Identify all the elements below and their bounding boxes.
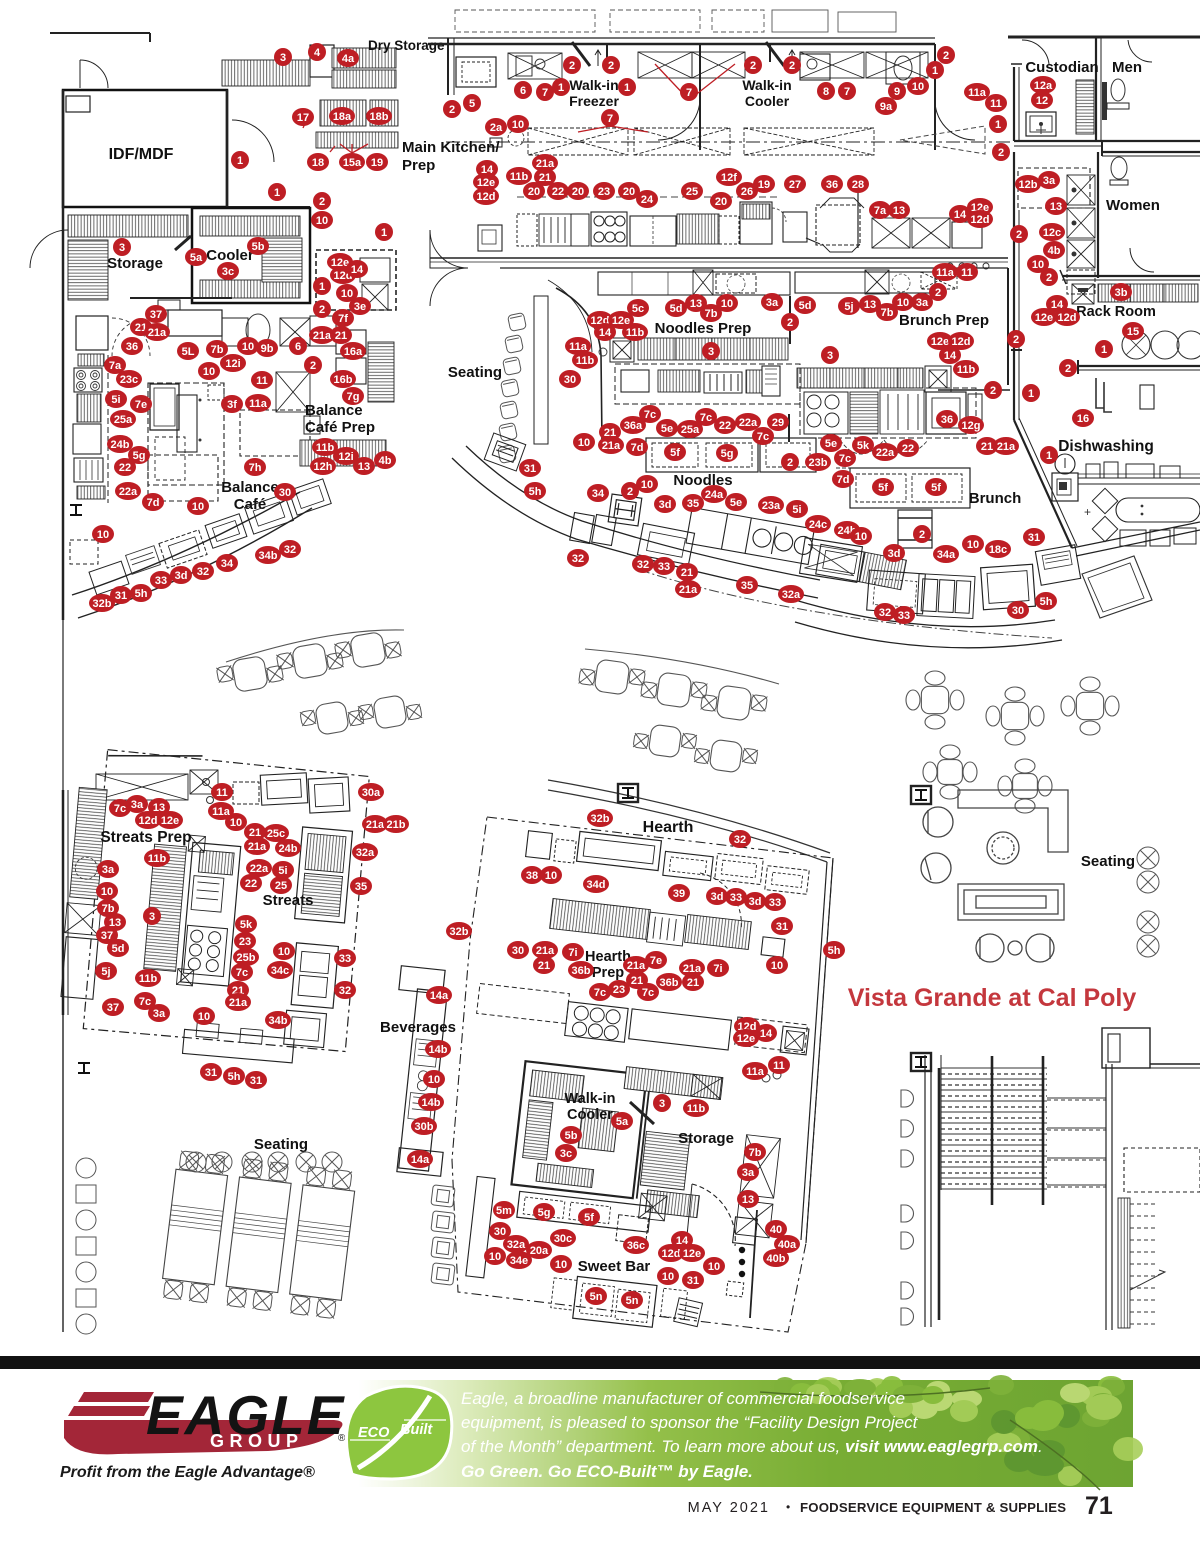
svg-text:FOODSERVICE EQUIPMENT & SUPPLI: FOODSERVICE EQUIPMENT & SUPPLIES <box>800 1500 1066 1515</box>
svg-text:1: 1 <box>624 82 630 94</box>
svg-text:5f: 5f <box>584 1212 594 1224</box>
svg-text:2: 2 <box>319 196 325 208</box>
svg-text:7a: 7a <box>109 360 122 372</box>
svg-text:37: 37 <box>107 1002 119 1014</box>
svg-text:5d: 5d <box>670 303 683 315</box>
svg-text:39: 39 <box>673 888 685 900</box>
svg-text:22a: 22a <box>250 863 269 875</box>
svg-text:2: 2 <box>608 60 614 72</box>
svg-text:12: 12 <box>1036 95 1048 107</box>
svg-text:3c: 3c <box>222 266 234 278</box>
svg-text:40a: 40a <box>778 1239 797 1251</box>
svg-text:3: 3 <box>827 350 833 362</box>
svg-text:18a: 18a <box>333 111 352 123</box>
svg-text:10: 10 <box>428 1074 440 1086</box>
svg-text:12h: 12h <box>314 461 333 473</box>
svg-text:3a: 3a <box>766 297 779 309</box>
svg-text:2: 2 <box>1016 229 1022 241</box>
svg-text:11a: 11a <box>746 1066 765 1078</box>
svg-text:22: 22 <box>902 443 914 455</box>
svg-text:5d: 5d <box>799 300 812 312</box>
svg-text:13: 13 <box>358 461 370 473</box>
svg-text:5f: 5f <box>878 482 888 494</box>
svg-text:21: 21 <box>981 441 993 453</box>
svg-text:4a: 4a <box>342 53 355 65</box>
svg-text:MAY 2021: MAY 2021 <box>688 1500 770 1516</box>
svg-text:4b: 4b <box>379 455 392 467</box>
svg-text:1: 1 <box>381 227 387 239</box>
svg-text:18c: 18c <box>989 544 1007 556</box>
svg-text:11: 11 <box>773 1060 785 1072</box>
svg-text:33: 33 <box>898 610 910 622</box>
svg-text:11b: 11b <box>576 355 595 367</box>
svg-text:12e: 12e <box>161 815 179 827</box>
svg-text:34: 34 <box>221 558 234 570</box>
svg-text:10: 10 <box>912 81 924 93</box>
svg-text:36: 36 <box>941 414 953 426</box>
svg-text:3a: 3a <box>1043 175 1056 187</box>
svg-text:7e: 7e <box>650 955 662 967</box>
svg-text:Walk-in: Walk-in <box>569 77 618 93</box>
svg-text:23b: 23b <box>809 457 828 469</box>
svg-text:3d: 3d <box>711 891 724 903</box>
svg-text:Storage: Storage <box>678 1130 734 1147</box>
svg-text:24: 24 <box>641 194 654 206</box>
svg-text:32: 32 <box>339 985 351 997</box>
svg-text:21a: 21a <box>602 440 621 452</box>
svg-text:11: 11 <box>216 787 228 799</box>
svg-text:12e: 12e <box>931 336 949 348</box>
svg-text:16b: 16b <box>334 374 353 386</box>
svg-text:14b: 14b <box>429 1044 448 1056</box>
svg-text:5a: 5a <box>616 1116 629 1128</box>
svg-text:5f: 5f <box>931 482 941 494</box>
svg-text:Walk-in: Walk-in <box>742 77 791 93</box>
svg-text:5h: 5h <box>828 945 841 957</box>
svg-text:32a: 32a <box>507 1239 526 1251</box>
svg-text:4: 4 <box>314 47 321 59</box>
svg-text:17: 17 <box>297 112 309 124</box>
svg-text:30: 30 <box>279 487 291 499</box>
svg-text:6: 6 <box>520 85 526 97</box>
svg-text:14a: 14a <box>430 990 449 1002</box>
svg-text:Go Green. Go ECO-Built™ by Eag: Go Green. Go ECO-Built™ by Eagle. <box>461 1462 753 1481</box>
svg-text:Men: Men <box>1112 59 1142 76</box>
svg-text:3d: 3d <box>749 896 762 908</box>
svg-text:23: 23 <box>613 984 625 996</box>
svg-text:1: 1 <box>995 119 1001 131</box>
svg-text:18: 18 <box>312 157 324 169</box>
svg-text:Hearth: Hearth <box>643 819 694 836</box>
svg-text:11b: 11b <box>626 327 645 339</box>
svg-text:36b: 36b <box>660 977 679 989</box>
svg-text:33: 33 <box>339 953 351 965</box>
svg-text:32b: 32b <box>450 926 469 938</box>
svg-text:22a: 22a <box>876 447 895 459</box>
svg-text:10: 10 <box>578 437 590 449</box>
svg-text:25c: 25c <box>267 828 285 840</box>
svg-text:30: 30 <box>564 374 576 386</box>
svg-text:10: 10 <box>512 119 524 131</box>
svg-text:7d: 7d <box>147 497 160 509</box>
svg-text:Rack Room: Rack Room <box>1076 304 1156 320</box>
svg-text:40b: 40b <box>767 1253 786 1265</box>
svg-text:7d: 7d <box>631 442 644 454</box>
svg-text:2: 2 <box>1065 363 1071 375</box>
svg-text:1: 1 <box>1028 388 1034 400</box>
svg-text:11: 11 <box>990 98 1002 110</box>
svg-text:21: 21 <box>681 567 693 579</box>
svg-text:7c: 7c <box>236 967 248 979</box>
svg-text:13: 13 <box>893 205 905 217</box>
svg-text:5b: 5b <box>565 1130 578 1142</box>
svg-text:7i: 7i <box>568 947 577 959</box>
svg-text:26: 26 <box>741 186 753 198</box>
svg-text:32: 32 <box>637 559 649 571</box>
svg-text:31: 31 <box>250 1075 262 1087</box>
svg-text:30: 30 <box>494 1226 506 1238</box>
svg-text:22: 22 <box>245 878 257 890</box>
svg-text:10: 10 <box>203 366 215 378</box>
svg-text:32a: 32a <box>782 589 801 601</box>
svg-text:21a: 21a <box>536 158 555 170</box>
svg-text:14: 14 <box>351 264 364 276</box>
svg-text:5e: 5e <box>825 438 837 450</box>
svg-text:1: 1 <box>558 82 564 94</box>
svg-text:21: 21 <box>539 172 551 184</box>
svg-text:Walk-in: Walk-in <box>564 1091 615 1107</box>
svg-text:Brunch: Brunch <box>969 490 1022 507</box>
svg-text:36: 36 <box>126 341 138 353</box>
svg-text:2: 2 <box>990 385 996 397</box>
svg-text:11b: 11b <box>139 973 158 985</box>
svg-text:3f: 3f <box>227 399 237 411</box>
svg-text:7c: 7c <box>757 431 769 443</box>
svg-text:10: 10 <box>721 298 733 310</box>
svg-text:5j: 5j <box>101 966 110 978</box>
svg-text:21a: 21a <box>627 960 646 972</box>
svg-text:25a: 25a <box>114 414 133 426</box>
svg-text:7b: 7b <box>881 307 894 319</box>
svg-text:11b: 11b <box>957 364 976 376</box>
svg-text:7e: 7e <box>135 399 147 411</box>
svg-text:21: 21 <box>687 977 699 989</box>
svg-text:16a: 16a <box>344 346 363 358</box>
svg-text:1: 1 <box>237 155 243 167</box>
svg-text:3a: 3a <box>102 864 115 876</box>
svg-text:5h: 5h <box>1040 596 1053 608</box>
svg-text:5k: 5k <box>857 440 870 452</box>
svg-text:29: 29 <box>772 417 784 429</box>
svg-text:10: 10 <box>278 946 290 958</box>
svg-text:33: 33 <box>769 897 781 909</box>
svg-text:19: 19 <box>758 179 770 191</box>
svg-text:13: 13 <box>690 298 702 310</box>
svg-text:11a: 11a <box>936 267 955 279</box>
svg-text:12d: 12d <box>662 1248 681 1260</box>
svg-text:1: 1 <box>274 187 280 199</box>
svg-text:Cooler: Cooler <box>567 1107 613 1123</box>
svg-text:5n: 5n <box>626 1295 639 1307</box>
svg-text:9: 9 <box>894 86 900 98</box>
svg-text:21b: 21b <box>387 819 406 831</box>
svg-text:23: 23 <box>598 186 610 198</box>
svg-text:10: 10 <box>1032 259 1044 271</box>
svg-text:2: 2 <box>787 317 793 329</box>
svg-text:7b: 7b <box>211 344 224 356</box>
svg-text:10: 10 <box>230 817 242 829</box>
svg-text:11b: 11b <box>510 171 529 183</box>
svg-text:7c: 7c <box>114 803 126 815</box>
svg-text:ECO: ECO <box>358 1425 390 1441</box>
svg-text:Noodles: Noodles <box>673 472 732 489</box>
svg-text:34b: 34b <box>269 1015 288 1027</box>
svg-text:3a: 3a <box>131 799 144 811</box>
svg-text:11a: 11a <box>968 87 987 99</box>
svg-text:30b: 30b <box>415 1121 434 1133</box>
svg-text:12d: 12d <box>1058 312 1077 324</box>
svg-text:Streats Prep: Streats Prep <box>100 829 191 846</box>
svg-text:5h: 5h <box>529 486 542 498</box>
svg-text:3a: 3a <box>916 297 929 309</box>
svg-text:1: 1 <box>1101 344 1107 356</box>
svg-text:5i: 5i <box>111 394 120 406</box>
svg-text:13: 13 <box>864 299 876 311</box>
svg-text:12e: 12e <box>683 1248 701 1260</box>
svg-text:23a: 23a <box>762 500 781 512</box>
svg-text:7c: 7c <box>644 409 656 421</box>
svg-text:5f: 5f <box>670 447 680 459</box>
svg-text:7f: 7f <box>338 313 348 325</box>
svg-text:31: 31 <box>115 590 127 602</box>
svg-text:8: 8 <box>823 86 829 98</box>
svg-text:36b: 36b <box>572 965 591 977</box>
svg-text:5m: 5m <box>496 1205 512 1217</box>
svg-text:3a: 3a <box>742 1167 755 1179</box>
svg-text:2: 2 <box>310 360 316 372</box>
svg-text:5h: 5h <box>228 1071 241 1083</box>
svg-text:14b: 14b <box>422 1097 441 1109</box>
svg-text:10: 10 <box>545 870 557 882</box>
svg-text:equipment, is pleased to spons: equipment, is pleased to sponsor the “Fa… <box>461 1413 919 1432</box>
svg-text:12b: 12b <box>1019 179 1038 191</box>
svg-text:3a: 3a <box>153 1008 166 1020</box>
svg-text:5L: 5L <box>182 346 195 358</box>
svg-text:24c: 24c <box>809 519 827 531</box>
svg-text:30a: 30a <box>362 787 381 799</box>
svg-text:Café Prep: Café Prep <box>305 419 375 436</box>
svg-text:2: 2 <box>998 147 1004 159</box>
svg-text:36: 36 <box>826 179 838 191</box>
svg-text:34c: 34c <box>271 965 289 977</box>
svg-text:21a: 21a <box>248 841 267 853</box>
svg-text:5: 5 <box>469 98 475 110</box>
svg-text:21a: 21a <box>536 945 555 957</box>
svg-text:36a: 36a <box>624 420 643 432</box>
svg-text:3b: 3b <box>1115 287 1128 299</box>
svg-text:21a: 21a <box>313 330 332 342</box>
svg-text:20: 20 <box>572 186 584 198</box>
svg-text:35: 35 <box>355 881 367 893</box>
svg-text:5g: 5g <box>721 448 734 460</box>
svg-text:14: 14 <box>944 350 957 362</box>
svg-text:2: 2 <box>943 50 949 62</box>
svg-text:5k: 5k <box>240 919 253 931</box>
svg-text:5h: 5h <box>135 588 148 600</box>
svg-text:15a: 15a <box>343 157 362 169</box>
svg-text:25a: 25a <box>681 424 700 436</box>
svg-text:22: 22 <box>552 186 564 198</box>
svg-text:21a: 21a <box>366 819 385 831</box>
svg-text:7b: 7b <box>102 903 115 915</box>
svg-text:9a: 9a <box>880 101 893 113</box>
svg-text:23c: 23c <box>120 374 138 386</box>
svg-text:2: 2 <box>1046 272 1052 284</box>
svg-text:28: 28 <box>852 179 864 191</box>
svg-text:10: 10 <box>967 539 979 551</box>
svg-text:®: ® <box>338 1433 346 1444</box>
svg-text:10: 10 <box>316 215 328 227</box>
svg-text:24b: 24b <box>111 439 130 451</box>
svg-text:32: 32 <box>197 566 209 578</box>
svg-text:5i: 5i <box>792 504 801 516</box>
svg-text:12f: 12f <box>721 172 737 184</box>
svg-text:Main Kitchen/: Main Kitchen/ <box>402 139 500 156</box>
svg-text:20a: 20a <box>530 1245 549 1257</box>
svg-text:18b: 18b <box>370 111 389 123</box>
svg-text:22a: 22a <box>739 417 758 429</box>
svg-text:22: 22 <box>719 420 731 432</box>
svg-text:2: 2 <box>750 60 756 72</box>
svg-text:6: 6 <box>295 341 301 353</box>
svg-text:11b: 11b <box>687 1103 706 1115</box>
svg-text:Streats: Streats <box>263 892 314 909</box>
svg-text:12i: 12i <box>338 451 353 463</box>
svg-text:Seating: Seating <box>1081 853 1135 870</box>
svg-text:33: 33 <box>658 561 670 573</box>
svg-text:3: 3 <box>280 52 286 64</box>
svg-text:2: 2 <box>449 104 455 116</box>
svg-text:Custodian: Custodian <box>1025 59 1098 76</box>
svg-text:7c: 7c <box>139 996 151 1008</box>
svg-text:33: 33 <box>155 575 167 587</box>
svg-text:12c: 12c <box>1043 227 1061 239</box>
svg-text:Seating: Seating <box>448 364 502 381</box>
svg-text:2: 2 <box>789 60 795 72</box>
svg-text:5d: 5d <box>112 943 125 955</box>
svg-text:12d: 12d <box>971 214 990 226</box>
svg-text:Café: Café <box>234 496 267 513</box>
svg-text:2: 2 <box>919 529 925 541</box>
svg-text:34d: 34d <box>587 879 606 891</box>
svg-text:19: 19 <box>371 157 383 169</box>
svg-text:Balance: Balance <box>221 479 279 496</box>
svg-text:of the Month” department. To l: of the Month” department. To learn more … <box>461 1437 1043 1456</box>
svg-text:11b: 11b <box>316 442 335 454</box>
svg-text:12d: 12d <box>477 191 496 203</box>
svg-text:7h: 7h <box>249 462 262 474</box>
svg-text:2: 2 <box>935 287 941 299</box>
svg-text:11a: 11a <box>569 341 588 353</box>
svg-text:3d: 3d <box>888 548 901 560</box>
svg-text:10: 10 <box>897 297 909 309</box>
svg-text:38: 38 <box>526 870 538 882</box>
svg-text:32b: 32b <box>591 813 610 825</box>
svg-text:12d: 12d <box>952 336 971 348</box>
svg-text:7i: 7i <box>713 963 722 975</box>
svg-text:10: 10 <box>855 531 867 543</box>
svg-text:21: 21 <box>335 330 347 342</box>
svg-text:1: 1 <box>1046 450 1052 462</box>
svg-text:36c: 36c <box>627 1240 645 1252</box>
svg-text:12d: 12d <box>139 815 158 827</box>
svg-text:3: 3 <box>119 242 125 254</box>
svg-text:1: 1 <box>932 65 938 77</box>
svg-text:Profit from the Eagle Advantag: Profit from the Eagle Advantage® <box>60 1464 315 1481</box>
svg-text:7: 7 <box>844 86 850 98</box>
svg-text:5i: 5i <box>278 865 287 877</box>
svg-text:3e: 3e <box>354 301 366 313</box>
svg-text:14: 14 <box>760 1028 773 1040</box>
svg-text:30c: 30c <box>554 1233 572 1245</box>
svg-text:34e: 34e <box>510 1255 528 1267</box>
svg-text:15: 15 <box>1127 326 1139 338</box>
svg-text:Seating: Seating <box>254 1136 308 1153</box>
svg-text:7c: 7c <box>700 412 712 424</box>
svg-text:10: 10 <box>198 1011 210 1023</box>
svg-text:31: 31 <box>687 1275 699 1287</box>
svg-text:2a: 2a <box>490 122 503 134</box>
svg-text:7c: 7c <box>839 453 851 465</box>
svg-text:7g: 7g <box>347 391 360 403</box>
svg-text:10: 10 <box>341 288 353 300</box>
svg-text:3c: 3c <box>560 1148 572 1160</box>
svg-text:32: 32 <box>284 544 296 556</box>
svg-text:•: • <box>786 1500 790 1514</box>
svg-text:7c: 7c <box>594 987 606 999</box>
svg-text:21: 21 <box>538 960 550 972</box>
svg-text:5n: 5n <box>590 1291 603 1303</box>
svg-text:27: 27 <box>789 179 801 191</box>
svg-text:12e: 12e <box>737 1033 755 1045</box>
svg-text:5g: 5g <box>133 450 146 462</box>
svg-text:9b: 9b <box>261 343 274 355</box>
svg-text:Prep: Prep <box>402 157 435 174</box>
svg-text:11: 11 <box>961 267 973 279</box>
svg-text:2: 2 <box>569 60 575 72</box>
svg-text:Prep: Prep <box>592 965 624 981</box>
svg-text:Women: Women <box>1106 197 1160 214</box>
svg-text:33: 33 <box>730 892 742 904</box>
svg-text:2: 2 <box>1013 334 1019 346</box>
svg-text:10: 10 <box>771 960 783 972</box>
svg-text:10: 10 <box>101 886 113 898</box>
svg-text:10: 10 <box>662 1271 674 1283</box>
svg-text:3d: 3d <box>659 499 672 511</box>
svg-text:Freezer: Freezer <box>569 93 619 109</box>
svg-text:Noodles Prep: Noodles Prep <box>655 320 752 337</box>
svg-text:14: 14 <box>954 209 967 221</box>
svg-text:22: 22 <box>119 462 131 474</box>
svg-text:30: 30 <box>512 945 524 957</box>
svg-text:12e: 12e <box>1035 312 1053 324</box>
svg-text:30: 30 <box>1012 605 1024 617</box>
svg-text:7: 7 <box>542 87 548 99</box>
svg-text:Dry Storage: Dry Storage <box>368 38 445 53</box>
svg-text:+: + <box>1084 505 1091 519</box>
svg-text:11a: 11a <box>249 398 268 410</box>
svg-text:24a: 24a <box>705 489 724 501</box>
